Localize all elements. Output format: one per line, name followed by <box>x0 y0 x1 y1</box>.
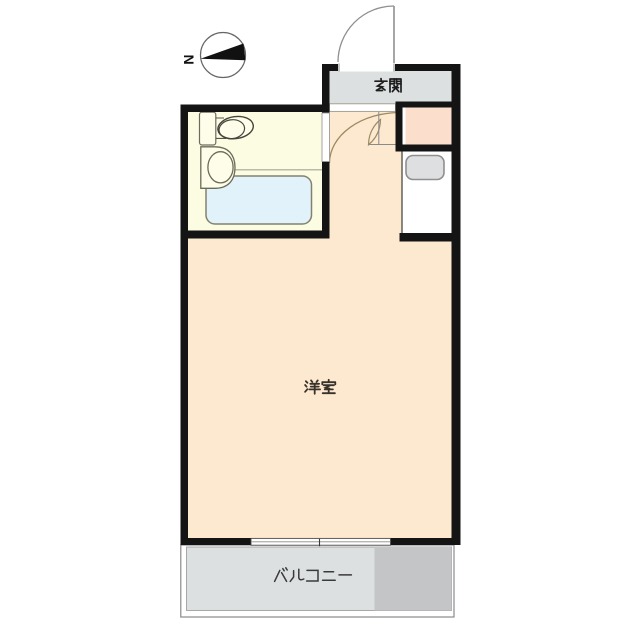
svg-text:N: N <box>181 54 197 64</box>
